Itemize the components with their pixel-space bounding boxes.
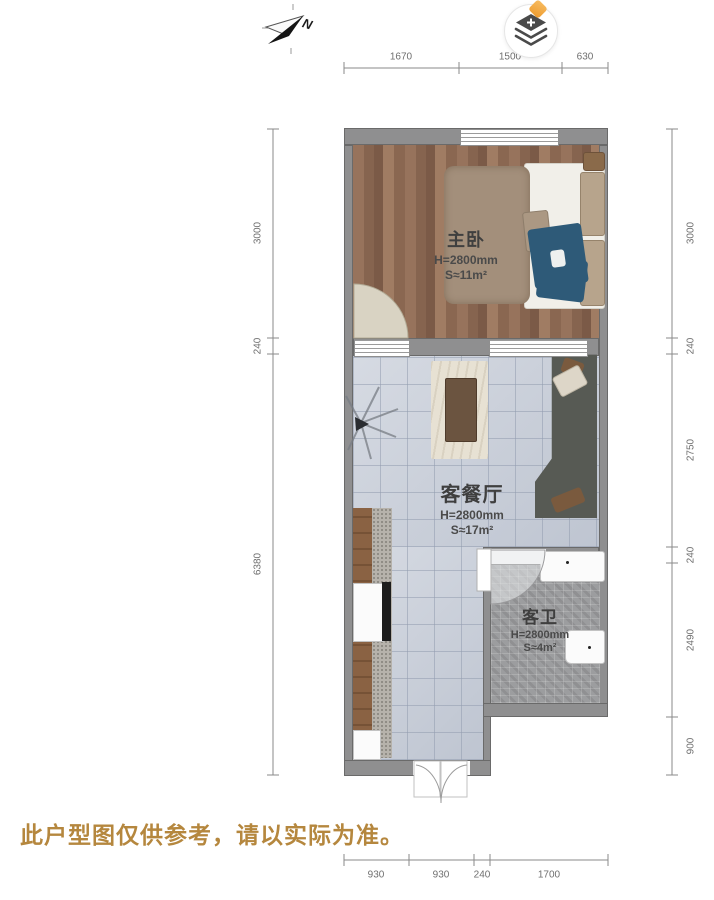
floorplan-canvas: 主卧 H=2800mm S≈11m² 客餐厅 H=2800mm S≈17m² 客…: [0, 0, 714, 900]
compass-label: N: [301, 15, 315, 32]
north-compass-icon: N: [0, 0, 714, 900]
disclaimer-text: 此户型图仅供参考，请以实际为准。: [20, 816, 404, 850]
